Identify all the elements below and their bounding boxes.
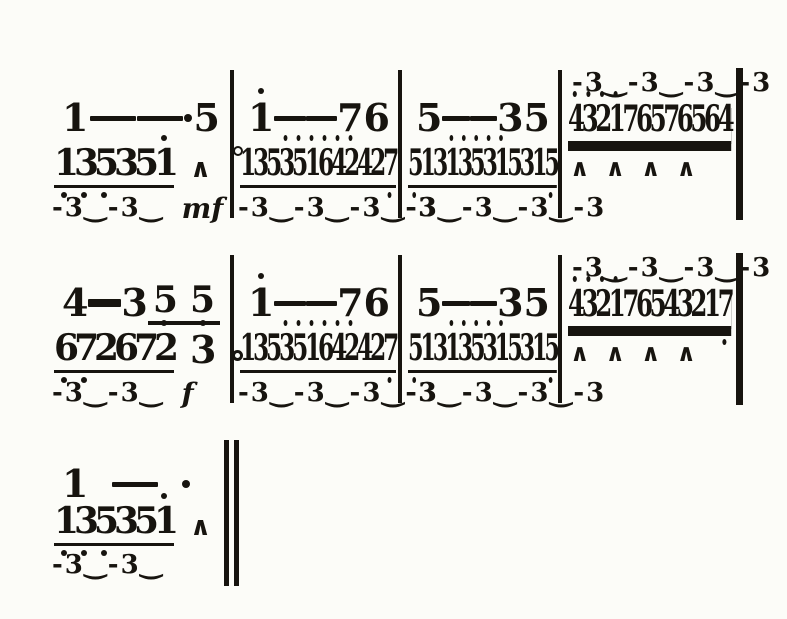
- duration-dash: [470, 116, 497, 121]
- octave-dot-above: [474, 135, 478, 141]
- octave-dot-above: [487, 135, 491, 141]
- note-digit: 3: [482, 330, 494, 366]
- note-run: 432176576564: [568, 101, 731, 144]
- note-digit: 5: [690, 101, 704, 137]
- triplet-row: -3‿-3‿-3‿-3: [406, 380, 556, 406]
- octave-dot-above: [450, 135, 454, 141]
- note-digit: 1: [54, 503, 74, 539]
- note: 5: [153, 282, 178, 318]
- duration-dash: [112, 482, 158, 487]
- final-barline: [736, 253, 743, 405]
- octave-dot-above: [284, 320, 288, 326]
- note-digit: 7: [622, 101, 636, 137]
- note-digit: 2: [344, 145, 357, 181]
- note: 3: [121, 284, 147, 322]
- note-digit: 2: [690, 286, 704, 322]
- accent-mark: ∧: [641, 341, 661, 365]
- note-run: 135351: [54, 145, 174, 188]
- lower-voice: 135351∧: [54, 152, 243, 188]
- note: 3: [190, 331, 216, 369]
- upper-voice: 176: [248, 98, 390, 138]
- note-digit: 5: [266, 145, 279, 181]
- note-digit: 4: [357, 330, 370, 366]
- note-digit: 6: [636, 286, 650, 322]
- duration-dash: [470, 301, 497, 306]
- note-digit: 1: [420, 330, 432, 366]
- final-barline: [224, 440, 229, 586]
- octave-dot-above: [573, 91, 577, 97]
- note-digit: 2: [370, 330, 383, 366]
- note-digit: 1: [532, 330, 544, 366]
- note-digit: 3: [433, 330, 445, 366]
- note-digit: 1: [154, 145, 174, 181]
- triplet-row-above: -3‿-3‿-3‿-3: [572, 70, 734, 96]
- note-digit: 5: [94, 503, 114, 539]
- note: 3: [497, 99, 523, 137]
- octave-dot-above: [499, 320, 503, 326]
- barline: [230, 70, 234, 218]
- octave-dot-above: [573, 276, 577, 282]
- note-digit: 7: [383, 330, 396, 366]
- note-digit: 5: [266, 330, 279, 366]
- octave-dot-above: [258, 88, 264, 94]
- note-digit: 7: [383, 145, 396, 181]
- note: 6: [364, 284, 390, 322]
- barline: [398, 70, 402, 218]
- note-digit: 2: [370, 145, 383, 181]
- octave-dot-above: [284, 135, 288, 141]
- final-barline: [234, 440, 239, 586]
- upper-voice: 535: [416, 283, 550, 323]
- upper-voice: 176: [248, 283, 390, 323]
- note-run: 513135315315: [408, 330, 557, 373]
- triplet-row: -3‿-3‿-3‿-3: [238, 380, 396, 406]
- octave-dot-above: [258, 273, 264, 279]
- octave-dot-above: [310, 135, 314, 141]
- octave-dot-above: [323, 135, 327, 141]
- note-run: 135351642427: [240, 145, 396, 188]
- note-digit: 4: [357, 145, 370, 181]
- accents-row: ∧∧∧∧: [570, 156, 696, 180]
- octave-dot-above: [586, 91, 590, 97]
- note-digit: 3: [74, 503, 94, 539]
- note: 4: [62, 284, 88, 322]
- measure: 176135351642427-3‿-3‿-3‿-3: [236, 253, 396, 411]
- accent-mark: ∧: [641, 156, 661, 180]
- note: 1: [62, 99, 88, 137]
- lower-voice: 432176576564: [568, 108, 787, 144]
- note-digit: 5: [292, 330, 305, 366]
- octave-dot-above: [614, 91, 618, 97]
- duration-dash: [306, 116, 337, 121]
- note-digit: 3: [253, 145, 266, 181]
- note-digit: 2: [595, 286, 609, 322]
- note-digit: 5: [650, 286, 664, 322]
- measure: 176135351642427-3‿-3‿-3‿-3: [236, 68, 396, 226]
- note-digit: 1: [54, 145, 74, 181]
- duration-dash: [137, 116, 183, 121]
- dynamic-marking: mf: [182, 195, 224, 223]
- note-digit: 6: [318, 330, 331, 366]
- note-digit: 3: [279, 330, 292, 366]
- note: 7: [337, 284, 363, 322]
- octave-dot-above: [487, 320, 491, 326]
- note-digit: 5: [94, 145, 114, 181]
- note-digit: 3: [458, 330, 470, 366]
- note: 1: [62, 465, 88, 503]
- note: 1: [248, 99, 274, 137]
- note-digit: 3: [114, 503, 134, 539]
- note-run: 672672: [54, 330, 174, 373]
- octave-dot-above: [600, 91, 604, 97]
- note-digit: 3: [74, 145, 94, 181]
- note-digit: 3: [582, 101, 596, 137]
- triplet-row: -3‿-3‿-3‿-3: [238, 195, 396, 221]
- note-run: 135351642427: [240, 330, 396, 373]
- octave-dot-above: [297, 320, 301, 326]
- note-digit: 5: [134, 503, 154, 539]
- note-digit: 1: [495, 145, 507, 181]
- octave-dot-above: [450, 320, 454, 326]
- triplet-row: -3‿-3‿f: [52, 380, 226, 408]
- augmentation-dot: [182, 480, 190, 488]
- octave-dot-above: [161, 320, 167, 326]
- note-digit: 6: [114, 330, 134, 366]
- note: 7: [337, 99, 363, 137]
- measure: -3‿-3‿-3‿-3432176543217∧∧∧∧: [564, 253, 734, 411]
- note-digit: 2: [344, 330, 357, 366]
- note-digit: 5: [134, 145, 154, 181]
- note-digit: 2: [154, 330, 174, 366]
- octave-dot-above: [161, 493, 167, 499]
- note: 5: [416, 99, 442, 137]
- note-digit: 1: [305, 145, 318, 181]
- upper-voice: 15: [62, 98, 220, 138]
- note-digit: 1: [240, 145, 253, 181]
- note: 5: [194, 99, 220, 137]
- note-digit: 4: [568, 286, 582, 322]
- note-digit: 1: [305, 330, 318, 366]
- note-digit: 1: [420, 145, 432, 181]
- note-digit: 5: [544, 330, 556, 366]
- accent-mark: ∧: [606, 341, 626, 365]
- octave-dot-above: [499, 135, 503, 141]
- accent-mark: ∧: [677, 341, 697, 365]
- note-digit: 5: [544, 145, 556, 181]
- note-digit: 7: [622, 286, 636, 322]
- note: 5: [190, 282, 215, 318]
- note: 3: [497, 284, 523, 322]
- note-digit: 5: [470, 145, 482, 181]
- note-digit: 6: [704, 101, 718, 137]
- augmentation-dot: [184, 114, 192, 122]
- accent-mark: ∧: [190, 514, 211, 540]
- triplet-row: -3‿-3‿-3‿-3: [406, 195, 556, 221]
- note-digit: 6: [636, 101, 650, 137]
- octave-dot-above: [462, 135, 466, 141]
- note-digit: 1: [532, 145, 544, 181]
- note-run: 432176543217: [568, 286, 731, 329]
- octave-dot-above: [600, 276, 604, 282]
- note-digit: 6: [318, 145, 331, 181]
- note-digit: 1: [445, 330, 457, 366]
- accent-mark: ∧: [677, 156, 697, 180]
- final-barline: [736, 68, 743, 220]
- duration-dash: [442, 116, 469, 121]
- octave-dot-above: [586, 276, 590, 282]
- octave-dot-above: [614, 276, 618, 282]
- triplet-row: -3‿-3‿mf: [52, 195, 226, 223]
- note-digit: 3: [279, 145, 292, 181]
- note-digit: 5: [507, 145, 519, 181]
- measure: 15135351∧-3‿-3‿mf: [50, 68, 226, 226]
- note-digit: 3: [114, 145, 134, 181]
- note-digit: 6: [54, 330, 74, 366]
- note-digit: 3: [582, 286, 596, 322]
- triplet-row: -3‿-3‿: [52, 552, 220, 578]
- octave-dot-above: [336, 320, 340, 326]
- lower-voice: 6726723: [54, 337, 243, 373]
- octave-dot-above: [336, 135, 340, 141]
- barline: [558, 70, 562, 218]
- note-digit: 4: [331, 330, 344, 366]
- note-digit: 6: [677, 101, 691, 137]
- duration-dash: [274, 301, 305, 306]
- triplet-marks: -3‿-3‿: [52, 552, 164, 578]
- line-2: 43556726723-3‿-3‿f176135351642427-3‿-3‿-…: [50, 253, 750, 413]
- note-digit: 5: [650, 101, 664, 137]
- triplet-marks: -3‿-3‿: [52, 380, 164, 406]
- note: 5: [524, 99, 550, 137]
- barline: [398, 255, 402, 403]
- note-digit: 1: [240, 330, 253, 366]
- duration-dash: [90, 116, 136, 121]
- note-digit: 1: [704, 286, 718, 322]
- octave-dot-above: [323, 320, 327, 326]
- beamed-note-group: 55: [148, 282, 220, 325]
- accent-mark: ∧: [606, 156, 626, 180]
- note-digit: 2: [595, 101, 609, 137]
- note: 1: [248, 284, 274, 322]
- triplet-row-above: -3‿-3‿-3‿-3: [572, 255, 734, 281]
- octave-dot-below: [722, 339, 726, 345]
- note-digit: 4: [718, 101, 732, 137]
- octave-dot-above: [297, 135, 301, 141]
- accent-mark: ∧: [190, 156, 211, 182]
- upper-voice: 535: [416, 98, 550, 138]
- octave-dot-above: [310, 320, 314, 326]
- note-digit: 3: [458, 145, 470, 181]
- measure: 535513135315315-3‿-3‿-3‿-3: [404, 253, 556, 411]
- note-digit: 3: [253, 330, 266, 366]
- measure: 535513135315315-3‿-3‿-3‿-3: [404, 68, 556, 226]
- note-digit: 7: [663, 101, 677, 137]
- duration-dash: [274, 116, 305, 121]
- note-digit: 3: [677, 286, 691, 322]
- accent-mark: ∧: [570, 156, 590, 180]
- note-digit: 5: [408, 145, 420, 181]
- duration-dash: [88, 299, 121, 307]
- duration-dash: [306, 301, 337, 306]
- note-digit: 5: [292, 145, 305, 181]
- note-digit: 1: [609, 101, 623, 137]
- measure: 43556726723-3‿-3‿f: [50, 253, 226, 411]
- note-run: 513135315315: [408, 145, 557, 188]
- upper-voice: 1: [62, 464, 190, 504]
- lower-voice: 135351∧: [54, 510, 211, 546]
- note: 5: [416, 284, 442, 322]
- note-digit: 2: [94, 330, 114, 366]
- lower-voice: 432176543217: [568, 293, 787, 329]
- octave-dot-above: [200, 320, 206, 326]
- dynamic-marking: f: [182, 380, 194, 408]
- octave-dot-above: [462, 320, 466, 326]
- note-digit: 1: [609, 286, 623, 322]
- line-3: 1135351∧-3‿-3‿: [50, 440, 300, 600]
- octave-dot-above: [349, 320, 353, 326]
- note-digit: 4: [663, 286, 677, 322]
- measure: -3‿-3‿-3‿-3432176576564∧∧∧∧: [564, 68, 734, 226]
- note: 5: [524, 284, 550, 322]
- accents-row: ∧∧∧∧: [570, 341, 696, 365]
- octave-dot-above: [161, 135, 167, 141]
- note-digit: 5: [470, 330, 482, 366]
- note: 6: [364, 99, 390, 137]
- barline: [230, 255, 234, 403]
- note-digit: 1: [495, 330, 507, 366]
- note-digit: 3: [433, 145, 445, 181]
- note-digit: 5: [507, 330, 519, 366]
- note-digit: 4: [568, 101, 582, 137]
- barline: [558, 255, 562, 403]
- note-digit: 1: [154, 503, 174, 539]
- triplet-marks: -3‿-3‿: [52, 195, 164, 221]
- octave-dot-above: [349, 135, 353, 141]
- accent-mark: ∧: [570, 341, 590, 365]
- note-run: 135351: [54, 503, 174, 546]
- note-digit: 7: [718, 286, 732, 322]
- upper-voice: 4355: [62, 283, 220, 323]
- note-digit: 1: [445, 145, 457, 181]
- note-digit: 3: [520, 330, 532, 366]
- note-digit: 7: [74, 330, 94, 366]
- note-digit: 3: [520, 145, 532, 181]
- note-digit: 3: [482, 145, 494, 181]
- note-digit: 7: [134, 330, 154, 366]
- measure: 1135351∧-3‿-3‿: [50, 440, 220, 598]
- note-digit: 5: [408, 330, 420, 366]
- duration-dash: [442, 301, 469, 306]
- octave-dot-above: [474, 320, 478, 326]
- note-digit: 4: [331, 145, 344, 181]
- line-1: 15135351∧-3‿-3‿mf176135351642427-3‿-3‿-3…: [50, 68, 750, 228]
